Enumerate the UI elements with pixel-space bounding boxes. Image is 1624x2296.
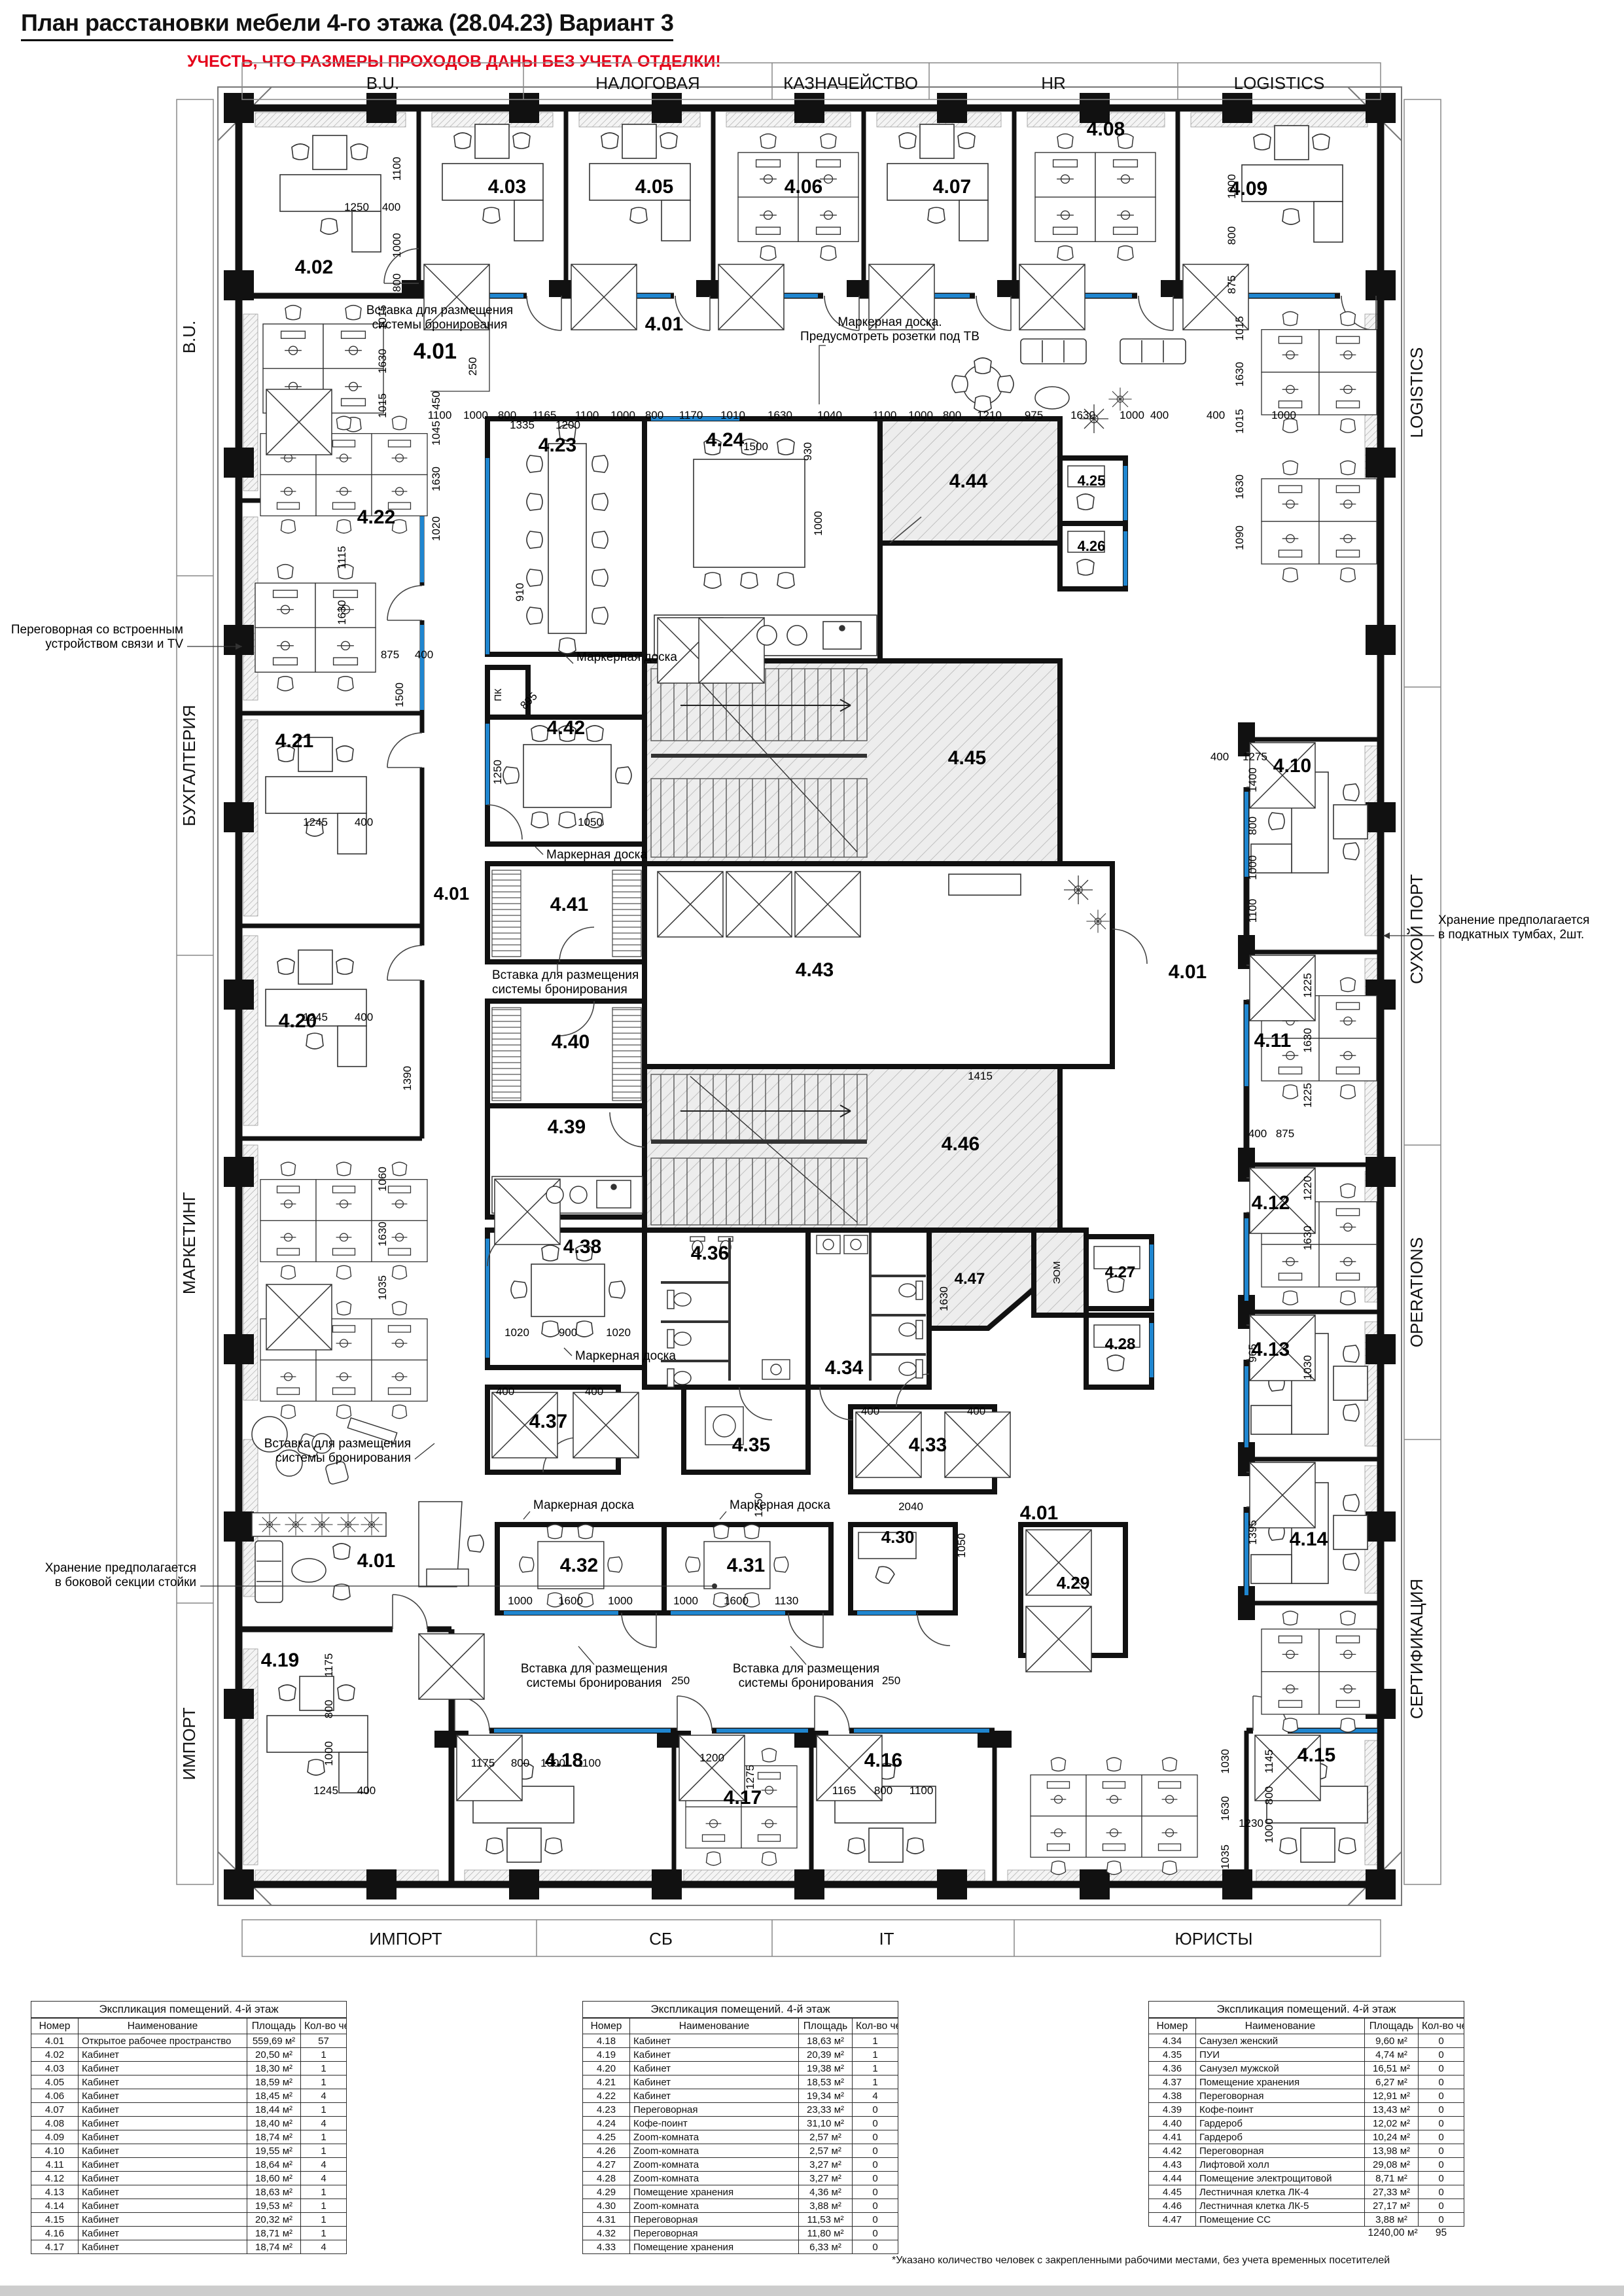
elevators <box>658 872 1110 937</box>
desk-4-02 <box>280 135 381 252</box>
table-row: 4.23Переговорная23,33 м²0 <box>583 2103 898 2117</box>
dim-label: 1630 <box>938 1286 950 1311</box>
dim-label: 1050 <box>955 1533 968 1558</box>
table-row: 4.45Лестничная клетка ЛК-427,33 м²0 <box>1149 2185 1464 2199</box>
room-label-4.31: 4.31 <box>727 1555 765 1576</box>
table-header-row: НомерНаименованиеПлощадьКол-во чел.* <box>1149 2018 1464 2034</box>
room-label-4.01: 4.01 <box>1020 1502 1058 1524</box>
dim-label: 1100 <box>391 157 403 181</box>
dept-label-nalogovaya: НАЛОГОВАЯ <box>595 73 699 93</box>
dim-label: 1000 <box>323 1741 335 1766</box>
dim-label: 930 <box>802 442 814 461</box>
meeting-table-4-42 <box>503 726 631 828</box>
workstations-4-22 <box>255 565 376 691</box>
dim-label: 1035 <box>1219 1845 1231 1869</box>
table-row: 4.03Кабинет18,30 м²1 <box>31 2062 347 2075</box>
room-label-4.01: 4.01 <box>357 1550 395 1572</box>
dim-label: 1275 <box>1243 751 1267 763</box>
room-label-4.21: 4.21 <box>275 730 313 752</box>
meeting-table-4-38 <box>511 1245 625 1337</box>
annotation: Переговорная со встроеннымустройством св… <box>11 623 183 651</box>
dept-label-sb: СБ <box>649 1929 673 1949</box>
dim-label: 1630 <box>768 409 792 421</box>
room-label-4.32: 4.32 <box>560 1555 598 1576</box>
annotation-leader <box>720 1511 726 1519</box>
open-space-cluster <box>260 1162 427 1279</box>
dim-label: 400 <box>1150 409 1169 421</box>
dim-label: 400 <box>585 1385 603 1398</box>
dim-label: 800 <box>511 1757 529 1769</box>
dim-label: 1245 <box>303 1011 328 1023</box>
dim-label: 1335 <box>510 419 535 431</box>
room-label-4.46: 4.46 <box>942 1133 980 1155</box>
explication-table-1: Экспликация помещений. 4-й этажНомерНаим… <box>31 2001 347 2254</box>
window-sills <box>243 113 1379 1883</box>
dim-label: 1130 <box>775 1595 799 1607</box>
dim-label: 1015 <box>1233 316 1246 341</box>
dim-label: 1630 <box>1301 1028 1314 1053</box>
dim-label: 800 <box>323 1700 335 1718</box>
annotation-dot <box>712 1583 717 1589</box>
dim-label: 1020 <box>504 1326 529 1339</box>
dim-label: 1145 <box>1263 1750 1275 1774</box>
dim-label: 1000 <box>540 1757 565 1769</box>
dept-label-bu-left: B.U. <box>179 321 199 354</box>
room-label-4.22: 4.22 <box>357 506 395 528</box>
dim-label: 400 <box>1210 751 1229 763</box>
room-label-4.12: 4.12 <box>1252 1192 1290 1214</box>
coffee-point-4-24 <box>654 439 877 683</box>
dim-label: 1630 <box>1233 362 1246 387</box>
annotation: Маркерная доска <box>533 1498 634 1512</box>
room-label-4.41: 4.41 <box>550 894 588 915</box>
room-label-4.26: 4.26 <box>1078 538 1106 554</box>
room-label-4.44: 4.44 <box>949 470 988 492</box>
annotation-leader <box>535 847 543 855</box>
table-row: 4.20Кабинет19,38 м²1 <box>583 2062 898 2075</box>
table-row: 4.22Кабинет19,34 м²4 <box>583 2089 898 2103</box>
table-title-row: Экспликация помещений. 4-й этаж <box>31 2002 347 2019</box>
table-row: 4.43Лифтовой холл29,08 м²0 <box>1149 2158 1464 2172</box>
dim-label: 1390 <box>401 1066 414 1091</box>
dept-label-it: IT <box>879 1929 894 1949</box>
table-title-row: Экспликация помещений. 4-й этаж <box>1149 2002 1464 2019</box>
dim-label: 1000 <box>1226 174 1238 199</box>
table-row: 4.30Zoom-комната3,88 м²0 <box>583 2199 898 2213</box>
open-space-cluster <box>1262 1611 1377 1732</box>
dim-label: 1100 <box>577 1757 601 1769</box>
table-row: 4.08Кабинет18,40 м²4 <box>31 2117 347 2130</box>
dim-label: 800 <box>943 409 961 421</box>
dim-label: 1090 <box>1233 525 1246 550</box>
dim-label: 400 <box>861 1405 879 1417</box>
dim-label: 1100 <box>909 1784 934 1797</box>
dim-label: 1045 <box>430 421 442 446</box>
room-label-4.02: 4.02 <box>295 256 333 278</box>
annotation-leader <box>415 1443 434 1459</box>
dim-label: 1030 <box>1219 1749 1231 1774</box>
dim-label: 400 <box>415 648 433 661</box>
dim-label: 1200 <box>699 1752 724 1764</box>
dim-label: 400 <box>496 1385 514 1398</box>
dim-label: 250 <box>467 357 479 376</box>
room-label-4.42: 4.42 <box>547 717 585 739</box>
room-label-4.10: 4.10 <box>1273 755 1311 777</box>
table-row: 4.25Zoom-комната2,57 м²0 <box>583 2130 898 2144</box>
annotation: Маркерная доска <box>576 650 677 664</box>
table-row: 4.27Zoom-комната3,27 м²0 <box>583 2158 898 2172</box>
table-row: 4.32Переговорная11,80 м²0 <box>583 2227 898 2240</box>
dim-label: 1030 <box>1301 1355 1314 1380</box>
dim-label: 250 <box>882 1674 900 1687</box>
dept-label-hr: HR <box>1041 73 1066 93</box>
dim-label: 1000 <box>673 1595 698 1607</box>
dim-label: 1630 <box>376 349 389 374</box>
dim-label: 800 <box>1263 1786 1275 1805</box>
dept-label-bu-top: B.U. <box>366 73 400 93</box>
table-totals-row: 1240,00 м²95 <box>1149 2227 1464 2240</box>
dept-label-import-bottom: ИМПОРТ <box>369 1929 442 1949</box>
room-label-4.08: 4.08 <box>1087 118 1125 140</box>
dim-label: 1000 <box>610 409 635 421</box>
dim-label: 1000 <box>1120 409 1144 421</box>
table-row: 4.17Кабинет18,74 м²4 <box>31 2240 347 2254</box>
dim-label: 1010 <box>720 409 745 421</box>
room-label-4.47: 4.47 <box>955 1270 985 1288</box>
bottom-scrollbar[interactable] <box>0 2286 1624 2296</box>
table-row: 4.05Кабинет18,59 м²1 <box>31 2075 347 2089</box>
room-label-4.16: 4.16 <box>864 1750 902 1771</box>
annotation: Хранение предполагаетсяв подкатных тумба… <box>1438 913 1589 942</box>
dim-label: 1015 <box>376 393 389 418</box>
dept-label-marketing: МАРКЕТИНГ <box>179 1192 199 1294</box>
table-row: 4.35ПУИ4,74 м²0 <box>1149 2048 1464 2062</box>
annotation: Вставка для размещениясистемы бронирован… <box>733 1662 879 1690</box>
room-label-4.45: 4.45 <box>948 747 986 769</box>
dim-label: 1630 <box>1233 474 1246 499</box>
open-space-cluster <box>1031 1757 1197 1875</box>
dim-label: 450 <box>430 391 442 410</box>
dim-label: 1250 <box>491 760 504 785</box>
dim-label: 1395 <box>1246 1520 1259 1545</box>
room-label-4.25: 4.25 <box>1078 472 1106 489</box>
room-label-4.05: 4.05 <box>635 176 673 198</box>
table-title-row: Экспликация помещений. 4-й этаж <box>583 2002 898 2019</box>
table-row: 4.47Помещение СС3,88 м²0 <box>1149 2213 1464 2227</box>
dim-label: 400 <box>967 1405 985 1417</box>
dim-label: 1000 <box>812 511 824 536</box>
annotation: Хранение предполагаетсяв боковой секции … <box>45 1561 196 1589</box>
dim-label: 1210 <box>977 409 1002 421</box>
annotation: Вставка для размещениясистемы бронирован… <box>264 1437 411 1465</box>
walls <box>239 108 1381 1884</box>
dept-label-kaznacheystvo: КАЗНАЧЕЙСТВО <box>783 73 918 93</box>
annotation-leader <box>564 1348 572 1356</box>
dim-label: 1015 <box>1233 409 1246 434</box>
dim-label: 1000 <box>391 233 403 258</box>
room-label-4.03: 4.03 <box>488 176 526 198</box>
dim-label: 1245 <box>303 816 328 828</box>
table-row: 4.11Кабинет18,64 м²4 <box>31 2158 347 2172</box>
table-row: 4.02Кабинет20,50 м²1 <box>31 2048 347 2062</box>
dim-label: 1630 <box>376 1222 389 1246</box>
dim-label: 1600 <box>558 1595 583 1607</box>
dept-label-operations: OPERATIONS <box>1407 1237 1426 1348</box>
table-row: 4.36Санузел мужской16,51 м²0 <box>1149 2062 1464 2075</box>
dim-label: 1000 <box>463 409 488 421</box>
dim-label: 1230 <box>1239 1817 1263 1829</box>
dim-label: 1050 <box>578 816 603 828</box>
table-row: 4.42Переговорная13,98 м²0 <box>1149 2144 1464 2158</box>
explication-table-3: Экспликация помещений. 4-й этажНомерНаим… <box>1148 2001 1464 2240</box>
dim-label: 1100 <box>428 409 452 421</box>
room-label-4.11: 4.11 <box>1254 1030 1292 1051</box>
dim-label: 1630 <box>430 467 442 491</box>
dim-label: 1275 <box>744 1765 756 1790</box>
dim-label: 895 <box>518 690 539 711</box>
table-row: 4.33Помещение хранения6,33 м²0 <box>583 2240 898 2254</box>
dim-label: 1170 <box>679 409 703 421</box>
dim-label: 1100 <box>873 409 897 421</box>
room-label-4.01: 4.01 <box>414 339 457 364</box>
dim-label: 1200 <box>556 419 580 431</box>
room-label-4.28: 4.28 <box>1105 1335 1136 1353</box>
dim-label: 975 <box>1025 409 1043 421</box>
annotation: Маркерная доска.Предусмотреть розетки по… <box>800 315 980 344</box>
table-row: 4.06Кабинет18,45 м²4 <box>31 2089 347 2103</box>
dim-label: 1040 <box>817 409 842 421</box>
annotation: Маркерная доска <box>575 1349 676 1363</box>
desk-4-19 <box>267 1676 368 1793</box>
dim-label: 1250 <box>344 201 369 213</box>
workstations-4-08 <box>1035 134 1156 260</box>
room-label-4.01: 4.01 <box>434 883 470 904</box>
dim-label: 400 <box>1207 409 1225 421</box>
annotation: Маркерная доска <box>546 848 647 862</box>
dim-label: 1060 <box>376 1167 389 1192</box>
room-label-4.35: 4.35 <box>732 1434 770 1456</box>
table-row: 4.28Zoom-комната3,27 м²0 <box>583 2172 898 2185</box>
room-label-4.17: 4.17 <box>724 1787 762 1809</box>
dim-label: 1630 <box>1219 1796 1231 1821</box>
dim-label: 800 <box>645 409 663 421</box>
room-label-4.30: 4.30 <box>881 1527 915 1547</box>
dim-label: 250 <box>671 1674 690 1687</box>
table-row: 4.38Переговорная12,91 м²0 <box>1149 2089 1464 2103</box>
desk-4-21 <box>266 737 366 854</box>
room-label-4.23: 4.23 <box>538 434 576 456</box>
table-header-row: НомерНаименованиеПлощадьКол-во чел.* <box>583 2018 898 2034</box>
dim-label: 1020 <box>606 1326 631 1339</box>
desk-4-20 <box>266 950 366 1067</box>
table-row: 4.44Помещение электрощитовой8,71 м²0 <box>1149 2172 1464 2185</box>
annotation: Вставка для размещениясистемы бронирован… <box>492 968 639 997</box>
coffee-point-4-39 <box>492 1176 643 1245</box>
table-header-row: НомерНаименованиеПлощадьКол-во чел.* <box>31 2018 347 2034</box>
footnote: *Указано количество человек с закрепленн… <box>892 2255 1390 2267</box>
table-row: 4.07Кабинет18,44 м²1 <box>31 2103 347 2117</box>
table-row: 4.12Кабинет18,60 м²4 <box>31 2172 347 2185</box>
table-row: 4.21Кабинет18,53 м²1 <box>583 2075 898 2089</box>
table-row: 4.16Кабинет18,71 м²1 <box>31 2227 347 2240</box>
dept-label-suhoy-port: СУХОЙ ПОРТ <box>1407 874 1426 984</box>
room-label-4.38: 4.38 <box>563 1236 601 1258</box>
dept-label-logistics-top: LOGISTICS <box>1234 73 1325 93</box>
room-label-4.07: 4.07 <box>933 176 971 198</box>
facade-outline <box>218 87 1402 1905</box>
dim-label: 400 <box>1248 1127 1267 1140</box>
annotation-leader <box>523 1511 530 1519</box>
table-row: 4.01Открытое рабочее пространство559,69 … <box>31 2034 347 2048</box>
table-row: 4.13Кабинет18,63 м²1 <box>31 2185 347 2199</box>
table-row: 4.29Помещение хранения4,36 м²0 <box>583 2185 898 2199</box>
dim-label: 800 <box>1246 817 1259 835</box>
room-label-4.33: 4.33 <box>909 1434 947 1456</box>
dim-label: 1165 <box>832 1784 856 1797</box>
table-row: 4.37Помещение хранения6,27 м²0 <box>1149 2075 1464 2089</box>
room-label-4.01: 4.01 <box>1169 961 1207 983</box>
room-label-4.34: 4.34 <box>825 1357 864 1379</box>
table-row: 4.39Кофе-поинт13,43 м²0 <box>1149 2103 1464 2117</box>
dim-label: 1225 <box>1301 973 1314 998</box>
table-row: 4.15Кабинет20,32 м²1 <box>31 2213 347 2227</box>
table-row: 4.46Лестничная клетка ЛК-527,17 м²0 <box>1149 2199 1464 2213</box>
dim-label: 1500 <box>393 682 406 707</box>
structural-columns <box>224 93 1396 1899</box>
table-row: 4.24Кофе-поинт31,10 м²0 <box>583 2117 898 2130</box>
explication-table-2: Экспликация помещений. 4-й этажНомерНаим… <box>582 2001 898 2254</box>
dim-label: 400 <box>357 1784 376 1797</box>
room-label-4.06: 4.06 <box>785 176 822 198</box>
dim-label: 1400 <box>1246 768 1259 792</box>
room-label-4.43: 4.43 <box>796 959 834 981</box>
room-label-4.37: 4.37 <box>529 1411 567 1432</box>
dim-label: 400 <box>355 816 373 828</box>
dim-label: 1115 <box>336 546 348 569</box>
dim-label: ЭОМ <box>1051 1262 1063 1284</box>
meeting-table-4-23 <box>527 425 608 654</box>
outer-wall <box>239 108 1381 1884</box>
dept-label-yuristy: ЮРИСТЫ <box>1174 1929 1252 1949</box>
dim-label: 965 <box>1246 1344 1259 1362</box>
table-row: 4.40Гардероб12,02 м²0 <box>1149 2117 1464 2130</box>
dim-label: 2040 <box>898 1500 923 1513</box>
dim-label: 1175 <box>323 1653 335 1678</box>
room-label-4.27: 4.27 <box>1105 1263 1136 1281</box>
annotation: Маркерная доска <box>730 1498 830 1512</box>
room-label-4.29: 4.29 <box>1057 1573 1090 1593</box>
dim-label: 1000 <box>508 1595 533 1607</box>
dim-label: 800 <box>874 1784 892 1797</box>
dim-label: 1630 <box>1070 409 1095 421</box>
dim-label: 900 <box>559 1326 577 1339</box>
room-label-4.01: 4.01 <box>645 313 683 335</box>
table-row: 4.10Кабинет19,55 м²1 <box>31 2144 347 2158</box>
dim-label: 1175 <box>471 1757 495 1769</box>
dim-label: 1220 <box>1301 1176 1314 1201</box>
room-label-4.19: 4.19 <box>261 1650 299 1671</box>
dim-label: 875 <box>1276 1127 1294 1140</box>
dim-label: 1000 <box>1271 409 1296 421</box>
dim-label: 1630 <box>336 600 348 625</box>
room-label-4.15: 4.15 <box>1297 1744 1335 1766</box>
table-row: 4.31Переговорная11,53 м²0 <box>583 2213 898 2227</box>
dim-label: 1165 <box>533 409 557 421</box>
dim-label: 1000 <box>908 409 933 421</box>
dept-label-import-left: ИМПОРТ <box>179 1707 199 1780</box>
dim-label: 800 <box>1226 226 1238 245</box>
dept-label-buhgalteriya: БУХГАЛТЕРИЯ <box>179 705 199 826</box>
table-row: 4.14Кабинет19,53 м²1 <box>31 2199 347 2213</box>
table-row: 4.41Гардероб10,24 м²0 <box>1149 2130 1464 2144</box>
dim-label: 1100 <box>1246 899 1259 923</box>
dim-label: 1000 <box>1246 855 1259 880</box>
open-space-cluster <box>1262 461 1377 582</box>
dim-label: 1000 <box>608 1595 633 1607</box>
dim-label: 1035 <box>376 1275 389 1300</box>
dim-label: 875 <box>381 648 399 661</box>
dim-label: 800 <box>391 274 403 292</box>
dim-label: 1500 <box>743 440 768 453</box>
room-label-4.14: 4.14 <box>1290 1528 1328 1550</box>
dim-label: 1245 <box>313 1784 338 1797</box>
dim-label: 875 <box>1226 275 1238 294</box>
dim-label: 1000 <box>1263 1818 1275 1843</box>
dim-label: 1020 <box>430 516 442 541</box>
table-row: 4.19Кабинет20,39 м²1 <box>583 2048 898 2062</box>
dept-label-logistics-right: LOGISTICS <box>1407 347 1426 438</box>
dim-label: 1630 <box>1301 1226 1314 1250</box>
dim-label: 400 <box>382 201 400 213</box>
table-row: 4.34Санузел женский9,60 м²0 <box>1149 2034 1464 2048</box>
table-row: 4.26Zoom-комната2,57 м²0 <box>583 2144 898 2158</box>
dim-label: 910 <box>514 583 526 601</box>
room-label-4.40: 4.40 <box>552 1031 590 1053</box>
table-row: 4.09Кабинет18,74 м²1 <box>31 2130 347 2144</box>
room-label-4.39: 4.39 <box>548 1116 586 1138</box>
annotation: Вставка для размещениясистемы бронирован… <box>521 1662 667 1690</box>
dim-label: 1415 <box>968 1070 993 1082</box>
table-row: 4.18Кабинет18,63 м²1 <box>583 2034 898 2048</box>
dim-label: 400 <box>355 1011 373 1023</box>
room-label-4.24: 4.24 <box>706 429 745 451</box>
dim-label: 1225 <box>1301 1083 1314 1108</box>
floor-plan: B.U. НАЛОГОВАЯ КАЗНАЧЕЙСТВО HR LOGISTICS… <box>0 0 1624 1996</box>
dept-label-sertifikaciya: СЕРТИФИКАЦИЯ <box>1407 1579 1426 1720</box>
dim-label: ПК <box>493 688 504 701</box>
dim-label: 1600 <box>724 1595 749 1607</box>
room-label-4.36: 4.36 <box>691 1243 729 1264</box>
annotation-leader <box>819 345 826 404</box>
annotation: Вставка для размещениясистемы бронирован… <box>366 304 513 332</box>
